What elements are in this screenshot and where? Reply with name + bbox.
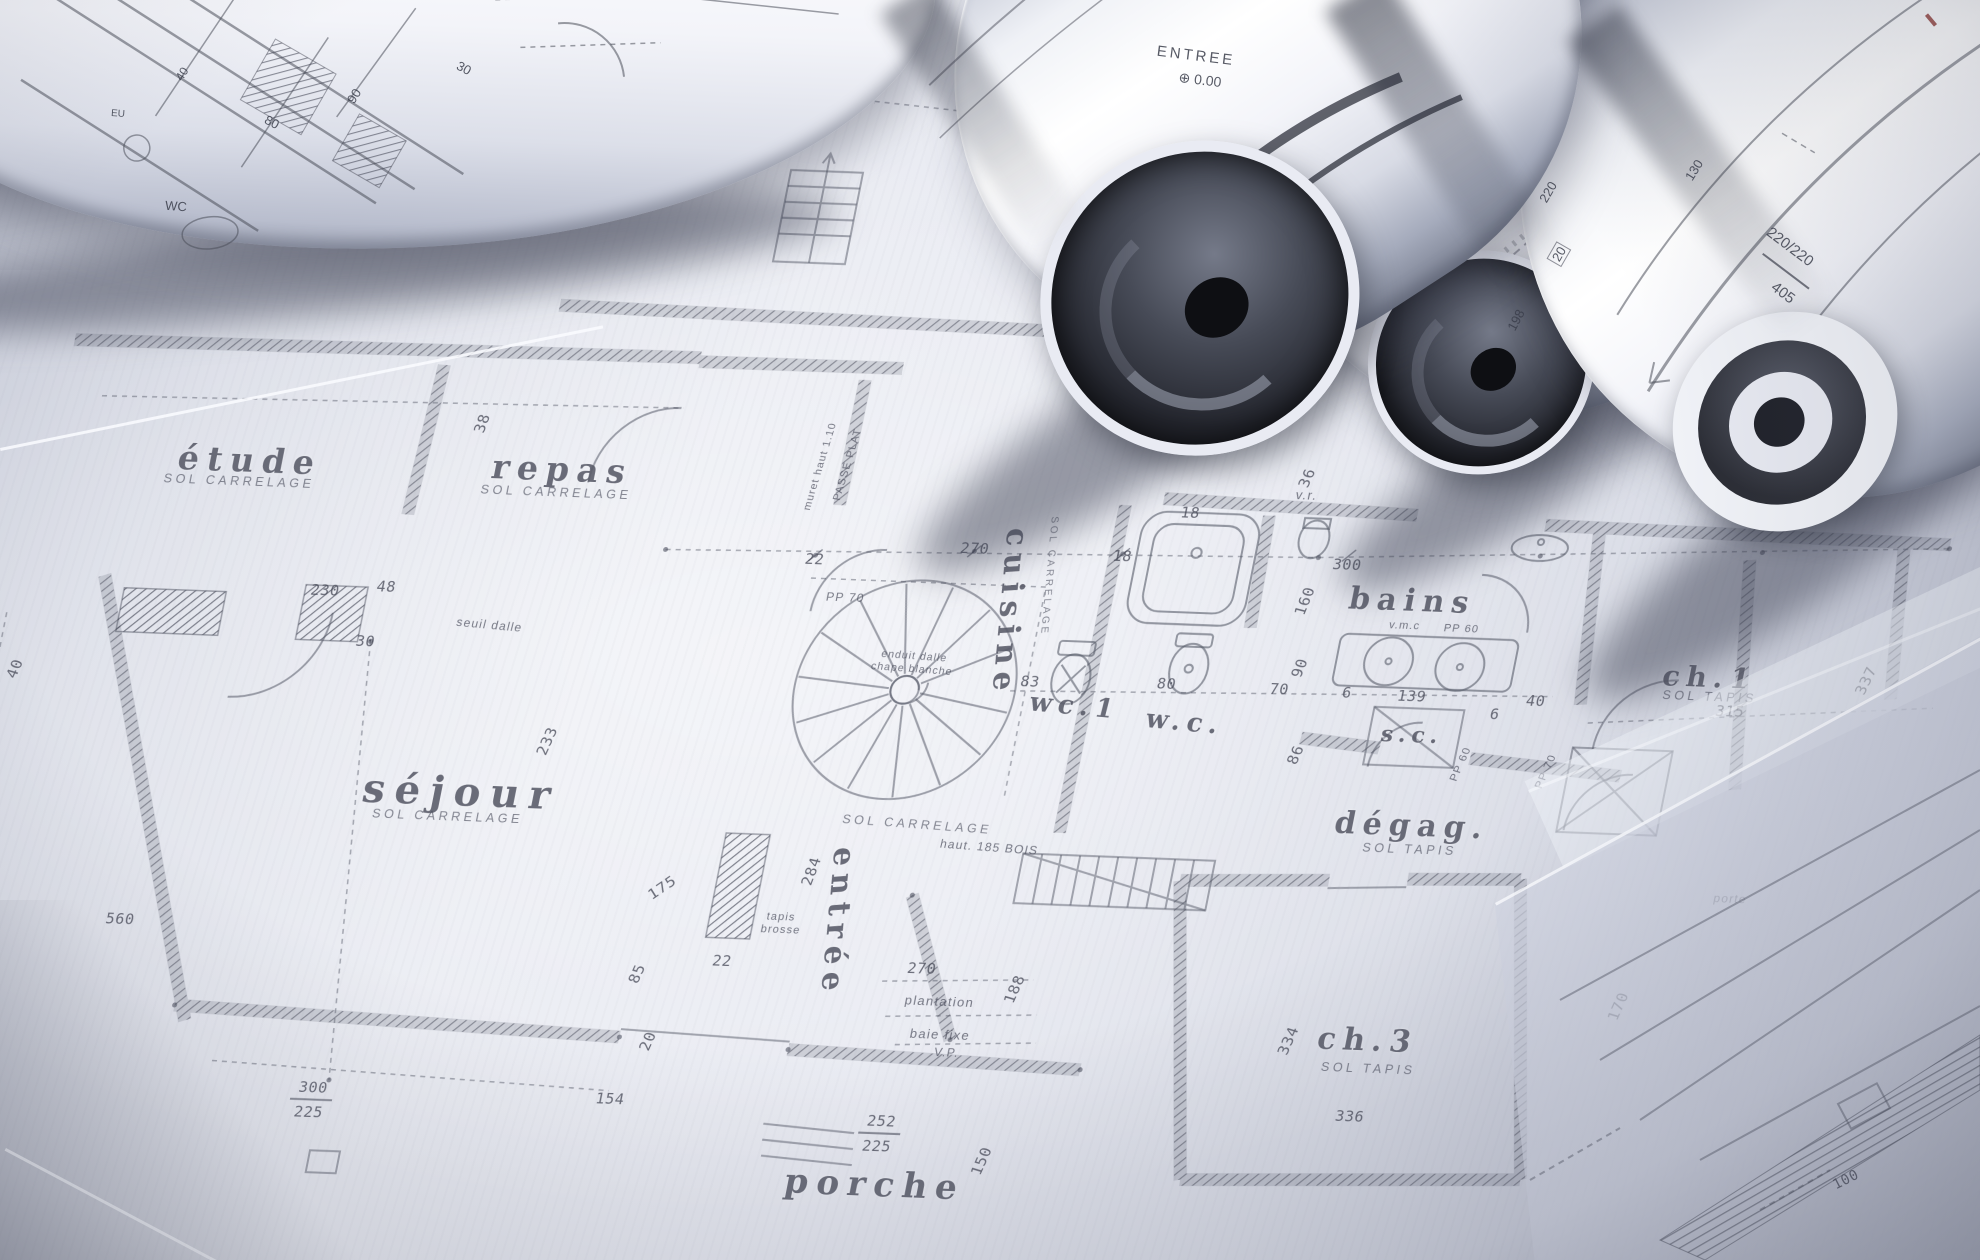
- roll-dim-220: 220: [1536, 179, 1560, 205]
- roll-dim-90: 90: [344, 86, 364, 106]
- roll-dim-220-220: 220/220: [1763, 224, 1817, 270]
- roll-dim-405: 405: [1768, 279, 1798, 308]
- roll-dim-198: 198: [1504, 307, 1527, 333]
- blueprint-photo: étude repas cuisine séjour entrée porche…: [0, 0, 1980, 1260]
- roll-dim-40: 40: [173, 65, 192, 84]
- roll-dim-30: 30: [454, 58, 474, 78]
- roll-label-wc: WC: [165, 198, 188, 214]
- roll-dim-20: 20: [1547, 241, 1572, 267]
- roll-label-eu: EU: [111, 108, 126, 120]
- roll-dim-130: 130: [1682, 157, 1706, 183]
- roll-label-entree: ENTREE: [1156, 43, 1236, 69]
- roll-text-layer: ENTREE ⊕ 0.00 220/220 405 220 20 130 198…: [0, 0, 1980, 1260]
- roll-dim-80: 80: [262, 112, 282, 132]
- roll-label-level: ⊕ 0.00: [1178, 69, 1223, 91]
- red-mark: [1925, 13, 1937, 26]
